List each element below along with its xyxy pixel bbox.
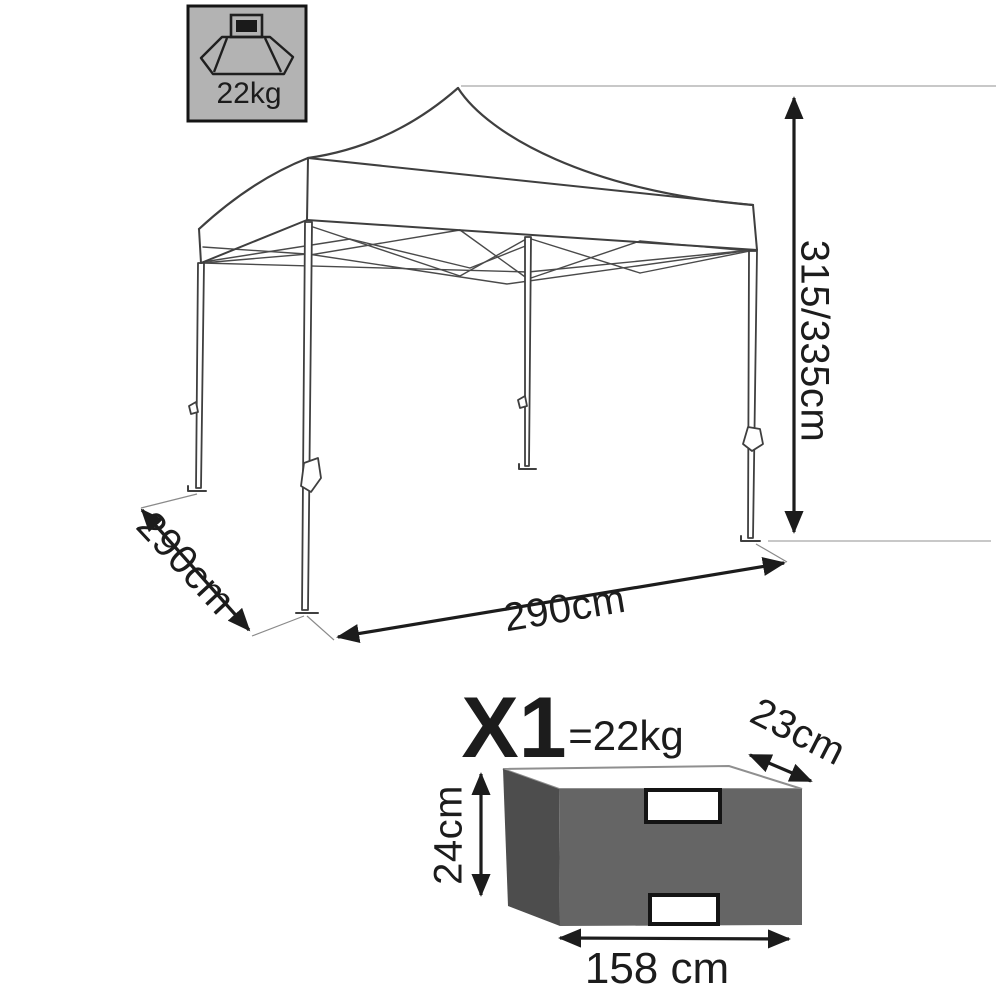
tent-width-dimension-label: 290cm [501,577,629,641]
package-width-dimension-label: 158 cm [585,944,729,993]
package-weight-label: =22kg [568,712,684,759]
package-illustration: X1 =22kg 23cm 24cm 158 cm [427,680,853,993]
front-right-leg-knob [743,427,763,451]
gazebo-line-drawing-icon: 315/335cm 290cm 290cm [128,86,996,640]
gazebo-dimension-diagram: 315/335cm 290cm 290cm 22kg X1 =22kg [0,0,1000,1000]
bag-top-handle [646,790,720,822]
package-quantity-label: X1 [461,680,566,776]
front-right-leg [748,251,757,538]
leader-front-right [756,544,787,562]
back-right-leg-clip [518,396,527,408]
weight-badge-label: 22kg [216,77,281,110]
gazebo-legs [188,222,763,613]
diagram-canvas: 315/335cm 290cm 290cm 22kg X1 =22kg [0,0,1000,1000]
leader-back-left [141,494,197,508]
bag-side-face [503,769,560,926]
back-right-leg [525,237,531,466]
tent-depth-dimension-label: 290cm [128,504,244,624]
weight-badge: 22kg [188,6,306,121]
leader-front-left-b [307,616,334,640]
tent-height-dimension-label: 315/335cm [792,240,836,442]
package-width-arrow [560,938,789,939]
back-left-leg [196,263,204,488]
bag-bottom-handle [650,895,718,924]
leader-front-left-a [252,616,304,636]
front-left-leg-knob [301,458,321,492]
back-left-leg-clip [189,402,198,414]
package-height-dimension-label: 24cm [427,785,471,885]
front-left-leg [302,222,312,610]
carry-bag-icon [503,766,802,926]
package-depth-dimension-label: 23cm [744,690,853,775]
